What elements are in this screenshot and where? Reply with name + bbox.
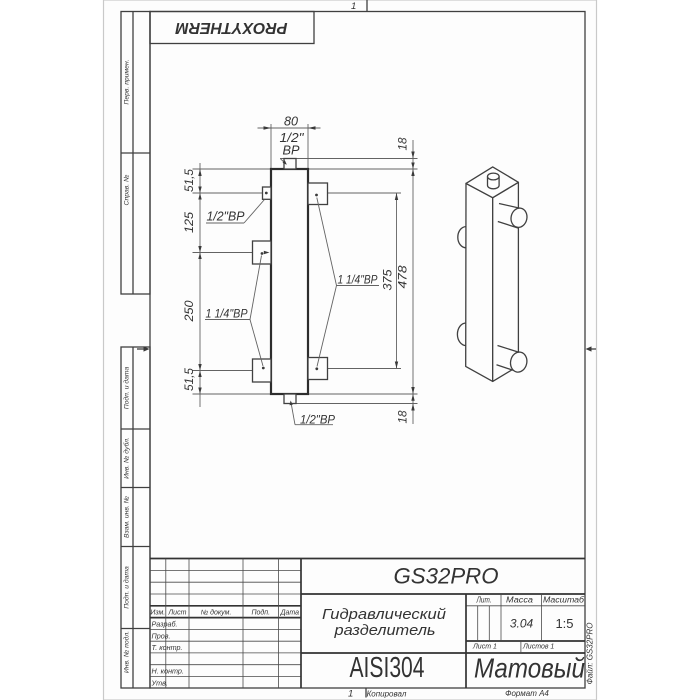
svg-text:Копировал: Копировал: [367, 690, 407, 699]
svg-text:Инв. № дубл.: Инв. № дубл.: [123, 437, 131, 479]
svg-text:478: 478: [396, 265, 410, 288]
svg-text:Подп. и дата: Подп. и дата: [123, 367, 131, 410]
svg-text:Взам. инв. №: Взам. инв. №: [124, 496, 131, 538]
svg-text:375: 375: [381, 269, 395, 290]
svg-text:Лист: Лист: [167, 610, 186, 617]
svg-text:ВР: ВР: [283, 144, 301, 158]
svg-text:Подп. и дата: Подп. и дата: [123, 566, 131, 609]
svg-text:Матовый: Матовый: [474, 653, 585, 684]
svg-text:1 1/4"ВР: 1 1/4"ВР: [206, 307, 248, 321]
svg-text:разделитель: разделитель: [333, 623, 435, 639]
svg-text:Лит.: Лит.: [476, 596, 492, 605]
svg-text:PROXYTHERM: PROXYTHERM: [175, 19, 288, 36]
svg-text:51,5: 51,5: [184, 168, 196, 192]
svg-text:1: 1: [351, 1, 356, 12]
svg-text:№ докум.: № докум.: [201, 609, 232, 617]
svg-text:Справ. №: Справ. №: [124, 175, 131, 206]
svg-text:18: 18: [396, 410, 410, 423]
svg-text:3.04: 3.04: [510, 617, 534, 631]
svg-text:Лист 1: Лист 1: [472, 643, 497, 650]
svg-text:Изм.: Изм.: [150, 610, 165, 617]
svg-text:Формат А4: Формат А4: [505, 689, 549, 698]
svg-text:Н. контр.: Н. контр.: [152, 667, 184, 676]
svg-text:18: 18: [396, 137, 410, 150]
svg-text:Перв. примен.: Перв. примен.: [124, 59, 131, 104]
svg-text:Листов 1: Листов 1: [522, 643, 554, 650]
svg-text:Утв.: Утв.: [151, 678, 168, 687]
svg-text:51,5: 51,5: [184, 367, 196, 391]
svg-text:Инв. № подл.: Инв. № подл.: [123, 631, 131, 673]
svg-text:Гидравлический: Гидравлический: [322, 607, 446, 623]
svg-text:1:5: 1:5: [555, 616, 573, 631]
svg-text:Пров.: Пров.: [152, 631, 171, 640]
svg-text:250: 250: [184, 300, 196, 323]
svg-text:Т. контр.: Т. контр.: [152, 643, 183, 652]
svg-text:1 1/4"ВР: 1 1/4"ВР: [338, 273, 378, 287]
svg-text:Масса: Масса: [506, 596, 534, 605]
svg-text:Разраб.: Разраб.: [152, 620, 178, 629]
svg-text:1/2"ВР: 1/2"ВР: [207, 210, 246, 224]
svg-text:Масштаб: Масштаб: [543, 596, 585, 605]
svg-text:125: 125: [184, 211, 196, 233]
svg-text:GS32PRO: GS32PRO: [394, 564, 499, 589]
svg-text:Подп.: Подп.: [251, 609, 270, 617]
svg-text:AISI304: AISI304: [350, 652, 425, 684]
svg-text:80: 80: [284, 114, 299, 129]
svg-text:1: 1: [348, 689, 353, 700]
svg-text:Дата: Дата: [280, 610, 300, 617]
svg-text:Файл: GS32PRO: Файл: GS32PRO: [586, 622, 595, 684]
